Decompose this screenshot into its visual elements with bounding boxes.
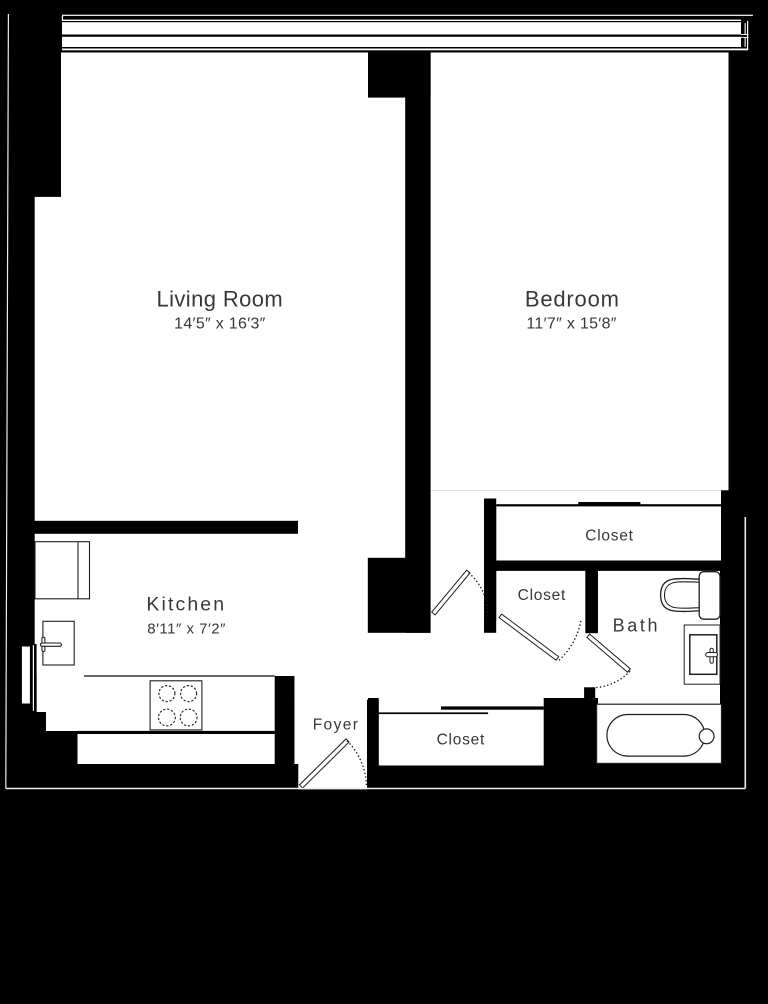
svg-text:14′5″ x 16′3″: 14′5″ x 16′3″ (174, 316, 266, 333)
svg-text:Foyer: Foyer (313, 717, 360, 734)
svg-text:Kitchen: Kitchen (146, 594, 226, 616)
svg-text:Closet: Closet (437, 732, 485, 749)
svg-text:Living Room: Living Room (156, 286, 283, 311)
svg-text:Closet: Closet (518, 587, 566, 604)
svg-text:Bath: Bath (613, 615, 660, 635)
svg-text:8′11″ x 7′2″: 8′11″ x 7′2″ (147, 620, 226, 637)
svg-text:Bedroom: Bedroom (525, 286, 620, 311)
svg-text:Closet: Closet (585, 528, 633, 545)
svg-text:11′7″ x 15′8″: 11′7″ x 15′8″ (526, 316, 616, 333)
